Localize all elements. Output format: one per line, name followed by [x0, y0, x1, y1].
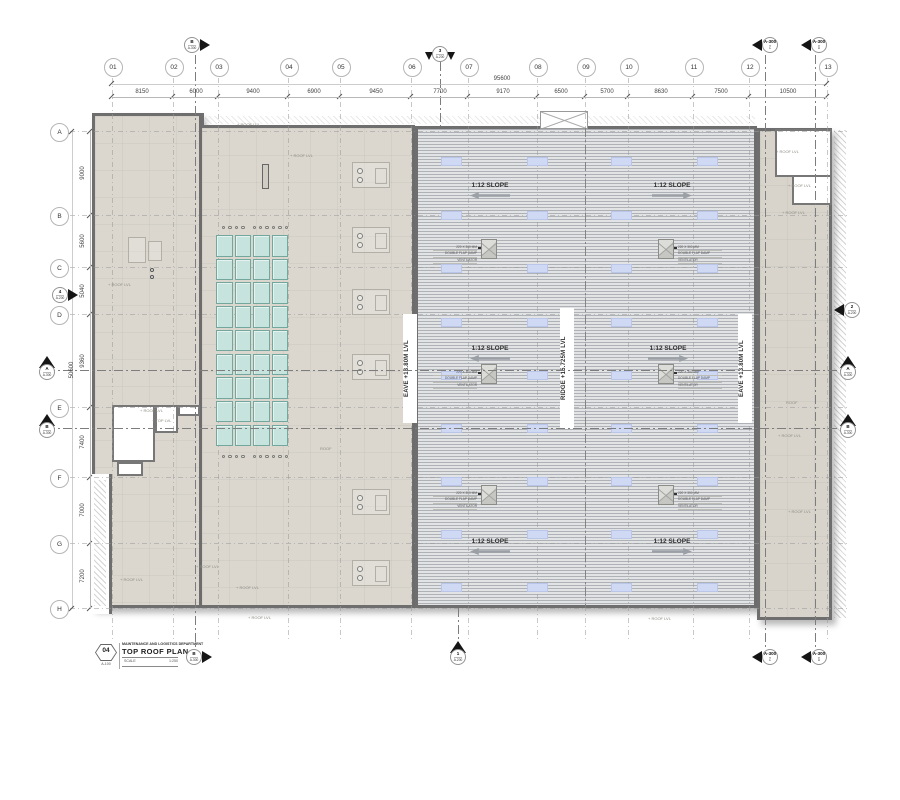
level-note: + ROOF LVL — [236, 586, 259, 590]
grid-line-row — [70, 131, 848, 132]
level-note: ROOF — [320, 447, 332, 451]
grid-line-column — [173, 78, 174, 640]
skylight-strip — [441, 264, 462, 273]
ventilator-note: 220 X 300 MMDOUBLE FLAP DAMPVENTILATOR — [678, 491, 722, 510]
section-marker-circle: A-300C — [762, 649, 778, 665]
scale-value: 1:250 — [158, 660, 178, 664]
section-cut-line — [46, 370, 852, 371]
equipment-fan-circle — [357, 575, 363, 581]
skylight-strip — [697, 157, 718, 166]
grid-bubble-row: B — [50, 207, 69, 226]
section-marker-label: 1 — [457, 652, 460, 657]
grid-bubble-column: 02 — [165, 58, 184, 77]
rooftop-equipment — [352, 560, 390, 586]
section-marker-label: B — [192, 652, 195, 657]
dimension-label: 5600 — [80, 221, 86, 261]
grid-bubble-row: F — [50, 469, 69, 488]
rooftop-equipment — [352, 489, 390, 515]
skylight-strip — [697, 318, 718, 327]
section-marker-label: B — [846, 425, 849, 430]
section-marker-circle: 1A-200 — [450, 649, 466, 665]
ventilator-note-line: VENTILATOR — [433, 383, 477, 389]
skylight-strip — [697, 530, 718, 539]
skylight-panel — [253, 401, 270, 423]
skylight-panel — [216, 354, 233, 376]
grid-bubble-row: G — [50, 535, 69, 554]
skylight-strip — [441, 157, 462, 166]
ventilator-leader — [478, 493, 481, 495]
section-marker-circle: AA-300 — [39, 364, 55, 380]
section-marker-B: BA-300 — [180, 30, 210, 60]
skylight-panel — [272, 330, 289, 352]
section-marker-circle: A-300D — [811, 37, 827, 53]
skylight-panel — [253, 259, 270, 281]
equipment-fan-circle — [357, 504, 363, 510]
section-cut-line — [46, 428, 852, 429]
grid-line-row — [70, 407, 848, 408]
skylight-panel — [253, 282, 270, 304]
level-note: + ROOF LVL — [782, 211, 805, 215]
skylight-panel — [272, 377, 289, 399]
equipment-housing — [375, 495, 387, 511]
skylight-panel — [216, 401, 233, 423]
sheet-number: 04 — [95, 648, 117, 655]
dimension-label: 9360 — [80, 341, 86, 381]
roof-structure — [128, 237, 146, 263]
section-marker-ref: C — [769, 45, 771, 50]
level-note: + ROOF LVL — [196, 565, 219, 569]
section-marker-A: AA-300 — [32, 355, 62, 385]
skylight-strip — [611, 157, 632, 166]
slope-label: 1:12 SLOPE — [458, 539, 522, 546]
skylight-panel — [272, 401, 289, 423]
grid-bubble-column: 12 — [741, 58, 760, 77]
ventilator-leader — [674, 493, 677, 495]
notch-left-4 — [117, 462, 143, 476]
ventilator-leader — [478, 372, 481, 374]
grid-bubble-column: 01 — [104, 58, 123, 77]
skylight-strip — [611, 530, 632, 539]
section-marker-ref: D — [818, 657, 820, 662]
section-marker-ref: A-300 — [43, 430, 52, 435]
equipment-fan-circle — [357, 168, 363, 174]
scale-label: SCALE — [124, 660, 136, 664]
section-marker-circle: BA-300 — [186, 649, 202, 665]
skylight-panel — [235, 401, 252, 423]
level-label: RIDGE +15.725M LVL — [560, 308, 574, 429]
dim-line-top — [112, 97, 827, 98]
drawing-title: TOP ROOF PLAN — [122, 648, 189, 656]
equipment-fan-circle — [357, 304, 363, 310]
title-rule — [122, 657, 178, 658]
skylight-panel — [272, 259, 289, 281]
section-marker-1: 1A-200 — [443, 640, 473, 670]
ventilator-note: 220 X 300 MMDOUBLE FLAP DAMPVENTILATOR — [433, 370, 477, 389]
level-note: + ROOF LVL — [140, 409, 163, 413]
skylight-strip — [527, 264, 548, 273]
section-marker-circle: A-300C — [762, 37, 778, 53]
skylight-panel — [216, 282, 233, 304]
rooftop-equipment — [352, 162, 390, 188]
dimension-label: 7400 — [80, 422, 86, 462]
section-marker-circle: BA-300 — [840, 422, 856, 438]
section-marker-circle: BA-300 — [39, 422, 55, 438]
skylight-panel — [216, 330, 233, 352]
skylight-strip — [697, 583, 718, 592]
title-divider — [119, 643, 120, 669]
section-marker-ref: A-200 — [436, 54, 445, 59]
skylight-panel — [235, 235, 252, 257]
section-marker-label: A — [45, 367, 48, 372]
overall-dimension-top: 95600 — [482, 76, 522, 82]
section-marker-label: A-300 — [813, 652, 825, 657]
grid-bubble-column: 09 — [577, 58, 596, 77]
ventilator-leader — [674, 372, 677, 374]
rooftop-equipment — [352, 289, 390, 315]
slope-label: 1:12 SLOPE — [636, 346, 700, 353]
section-marker-arrow — [68, 289, 78, 301]
dimension-label: 9450 — [356, 89, 396, 95]
skylight-panel — [272, 354, 289, 376]
skylight-strip — [441, 211, 462, 220]
notch-top-right-2 — [792, 175, 832, 205]
ventilator-note-line: VENTILATOR — [433, 504, 477, 510]
grid-line-row — [70, 608, 848, 609]
skylight-panel — [235, 282, 252, 304]
skylight-strip — [697, 211, 718, 220]
skylight-panel — [235, 354, 252, 376]
skylight-strip — [611, 477, 632, 486]
level-note: + ROOF LVL — [248, 616, 271, 620]
dimension-label: 5700 — [587, 89, 627, 95]
grid-line-column — [112, 78, 113, 640]
section-marker-label: A — [846, 367, 849, 372]
section-marker-ref: A-200 — [454, 657, 463, 662]
section-marker-arrow — [752, 39, 762, 51]
dimension-label: 6000 — [176, 89, 216, 95]
ventilator-detail — [481, 364, 497, 384]
level-note: + ROOF LVL — [290, 154, 313, 158]
dimension-label: 7000 — [80, 490, 86, 530]
slope-label: 1:12 SLOPE — [640, 183, 704, 190]
grid-line-row — [70, 314, 848, 315]
grid-bubble-column: 06 — [403, 58, 422, 77]
roof-vent-circle — [278, 226, 281, 229]
section-cut-line — [195, 55, 196, 650]
slope-label: 1:12 SLOPE — [458, 346, 522, 353]
level-note: + TOP LVL — [152, 419, 171, 423]
ventilator-detail — [658, 364, 674, 384]
section-marker-circle: 4A-200 — [52, 287, 68, 303]
section-marker-circle: 2A-200 — [844, 302, 860, 318]
section-marker-ref: D — [818, 45, 820, 50]
skylight-panel — [253, 306, 270, 328]
section-marker-label: B — [45, 425, 48, 430]
roof-step-wall — [199, 113, 204, 128]
section-marker-arrow — [752, 651, 762, 663]
skylight-panel — [235, 330, 252, 352]
grid-bubble-row: A — [50, 123, 69, 142]
dimension-label: 6500 — [541, 89, 581, 95]
section-marker-ref: A-300 — [190, 657, 199, 662]
skylight-strip — [611, 318, 632, 327]
section-marker-A-300: A-300D — [801, 642, 831, 672]
grid-bubble-row: H — [50, 600, 69, 619]
skylight-strip — [611, 583, 632, 592]
skylight-panel — [235, 306, 252, 328]
ventilator-detail — [658, 485, 674, 505]
overall-dimension-left: 50600 — [69, 350, 75, 390]
skylight-strip — [441, 477, 462, 486]
level-note: + ROOF LVL — [776, 150, 799, 154]
section-marker-A-300: A-300D — [801, 30, 831, 60]
ventilator-detail — [481, 239, 497, 259]
section-marker-A-300: A-300C — [752, 642, 782, 672]
skylight-strip — [441, 583, 462, 592]
slope-label: 1:12 SLOPE — [458, 183, 522, 190]
level-note: + ROOF LVL — [788, 510, 811, 514]
section-marker-A-300: A-300C — [752, 30, 782, 60]
grid-line-column — [693, 78, 694, 640]
skylight-panel — [253, 235, 270, 257]
ridge-line — [585, 128, 586, 608]
section-marker-arrow — [801, 39, 811, 51]
equipment-fan-circle — [357, 566, 363, 572]
section-marker-B: BA-300 — [32, 413, 62, 443]
level-note: + ROOF LVL — [788, 184, 811, 188]
ventilator-note: 220 X 300 MMDOUBLE FLAP DAMPVENTILATOR — [433, 491, 477, 510]
level-note: ROOF — [786, 401, 798, 405]
ventilator-detail — [481, 485, 497, 505]
skylight-panel — [253, 377, 270, 399]
section-marker-ref: A-300 — [43, 372, 52, 377]
dimension-label: 7500 — [701, 89, 741, 95]
skylight-panel — [272, 306, 289, 328]
section-marker-circle: BA-300 — [184, 37, 200, 53]
section-marker-label: A-300 — [813, 40, 825, 45]
equipment-fan-circle — [357, 495, 363, 501]
equipment-housing — [375, 566, 387, 582]
dimension-label: 10500 — [768, 89, 808, 95]
grid-bubble-column: 08 — [529, 58, 548, 77]
rooftop-equipment — [352, 354, 390, 380]
dimension-label: 5040 — [80, 271, 86, 311]
grid-bubble-column: 10 — [620, 58, 639, 77]
equipment-housing — [375, 295, 387, 311]
dimension-label: 9000 — [80, 153, 86, 193]
section-marker-ref: A-300 — [844, 372, 853, 377]
section-marker-label: 4 — [59, 290, 62, 295]
ventilator-leader — [674, 247, 677, 249]
equipment-housing — [375, 360, 387, 376]
section-marker-ref: A-300 — [844, 430, 853, 435]
grid-bubble-column: 03 — [210, 58, 229, 77]
skylight-panel — [216, 235, 233, 257]
skylight-panel — [272, 235, 289, 257]
section-marker-circle: A-300D — [811, 649, 827, 665]
skylight-panel — [253, 354, 270, 376]
section-marker-arrow — [200, 39, 210, 51]
dim-line-top-overall — [112, 84, 827, 85]
section-marker-label: 3 — [439, 49, 442, 54]
rooftop-equipment — [352, 227, 390, 253]
roof-plan-canvas: 04 A-100 MAINTENANCE AND LOGISTICS DEPAR… — [0, 0, 900, 800]
level-note: + ROOF LVL — [778, 434, 801, 438]
skylight-strip — [611, 371, 632, 380]
section-marker-A: AA-300 — [833, 355, 863, 385]
skylight-panel — [216, 377, 233, 399]
section-marker-B: BA-300 — [182, 642, 212, 672]
section-marker-label: A-300 — [764, 40, 776, 45]
ventilator-note-line: VENTILATOR — [678, 383, 722, 389]
section-marker-ref: A-200 — [56, 295, 65, 300]
section-marker-arrow — [834, 304, 844, 316]
slope-label: 1:12 SLOPE — [640, 539, 704, 546]
section-marker-4: 4A-200 — [48, 280, 78, 310]
skylight-strip — [527, 211, 548, 220]
skylight-strip — [527, 530, 548, 539]
section-marker-ref: A-300 — [188, 45, 197, 50]
section-marker-B: BA-300 — [833, 413, 863, 443]
dimension-label: 8630 — [641, 89, 681, 95]
section-cut-line — [765, 55, 766, 650]
grid-line-column — [340, 78, 341, 640]
skylight-strip — [527, 371, 548, 380]
roof-vent-circle — [278, 455, 281, 458]
section-marker-circle: 3A-200 — [432, 46, 448, 62]
grid-bubble-column: 05 — [332, 58, 351, 77]
sheet-ref: A-100 — [95, 663, 117, 667]
skylight-strip — [611, 211, 632, 220]
skylight-strip — [697, 264, 718, 273]
level-label: EAVE +13.80M LVL — [403, 314, 417, 423]
skylight-panel — [235, 259, 252, 281]
level-note: + ROOF LVL — [108, 283, 131, 287]
ventilator-note-line: VENTILATOR — [678, 258, 722, 264]
dimension-label: 7200 — [80, 556, 86, 596]
grid-line-column — [827, 78, 828, 640]
grid-bubble-column: 13 — [819, 58, 838, 77]
ventilator-note: 220 X 300 MMDOUBLE FLAP DAMPVENTILATOR — [433, 245, 477, 264]
section-marker-2: 2A-200 — [834, 295, 864, 325]
grid-bubble-column: 07 — [460, 58, 479, 77]
dimension-label: 8150 — [122, 89, 162, 95]
skylight-strip — [527, 318, 548, 327]
section-marker-circle: AA-300 — [840, 364, 856, 380]
roof-structure — [148, 241, 162, 261]
equipment-fan-circle — [357, 360, 363, 366]
roof-vent-circle — [150, 275, 154, 279]
ventilator-detail — [658, 239, 674, 259]
skylight-strip — [527, 477, 548, 486]
skylight-panel — [216, 306, 233, 328]
skylight-strip — [611, 264, 632, 273]
dimension-label: 6900 — [294, 89, 334, 95]
section-marker-label: A-300 — [764, 652, 776, 657]
equipment-fan-circle — [357, 233, 363, 239]
ventilator-note: 220 X 300 MMDOUBLE FLAP DAMPVENTILATOR — [678, 245, 722, 264]
grid-line-column — [288, 78, 289, 640]
roof-access-hatch — [262, 164, 269, 189]
section-marker-arrow — [801, 651, 811, 663]
skylight-strip — [527, 583, 548, 592]
skylight-panel — [253, 330, 270, 352]
ventilator-leader — [478, 247, 481, 249]
equipment-fan-circle — [357, 177, 363, 183]
equipment-housing — [375, 233, 387, 249]
ventilator-note-line: VENTILATOR — [433, 258, 477, 264]
skylight-strip — [441, 530, 462, 539]
dim-line-left — [90, 131, 91, 608]
section-marker-ref: A-200 — [848, 310, 857, 315]
skylight-strip — [527, 157, 548, 166]
section-marker-arrow — [202, 651, 212, 663]
section-marker-label: 2 — [851, 305, 854, 310]
level-note: + ROOF LVL — [120, 578, 143, 582]
section-marker-ref: C — [769, 657, 771, 662]
skylight-strip — [697, 477, 718, 486]
roof-vent-circle — [241, 226, 244, 229]
equipment-fan-circle — [357, 295, 363, 301]
title-rule-bottom — [122, 666, 178, 667]
skylight-panel — [272, 282, 289, 304]
equipment-fan-circle — [357, 242, 363, 248]
ventilator-note: 220 X 300 MMDOUBLE FLAP DAMPVENTILATOR — [678, 370, 722, 389]
skylight-panel — [216, 259, 233, 281]
grid-line-column — [468, 78, 469, 640]
skylight-panel — [235, 377, 252, 399]
notch-left-1 — [112, 405, 155, 462]
roof-hatch-detail — [540, 111, 588, 129]
equipment-housing — [375, 168, 387, 184]
ventilator-note-line: VENTILATOR — [678, 504, 722, 510]
section-cut-line — [815, 55, 816, 650]
dimension-label: 7700 — [420, 89, 460, 95]
section-marker-label: B — [190, 40, 193, 45]
roof-vent-circle — [150, 268, 154, 272]
section-marker-arrow — [447, 52, 455, 60]
dimension-label: 9170 — [483, 89, 523, 95]
level-note: + ROOF LVL — [648, 617, 671, 621]
dimension-label: 9400 — [233, 89, 273, 95]
grid-bubble-column: 04 — [280, 58, 299, 77]
level-note: + ROOF LVL — [237, 123, 260, 127]
section-marker-3: 3A-200 — [425, 40, 455, 70]
level-label: EAVE +13.80M LVL — [738, 314, 752, 423]
grid-bubble-row: C — [50, 259, 69, 278]
grid-bubble-column: 11 — [685, 58, 704, 77]
roof-vent-circle — [241, 455, 244, 458]
skylight-strip — [441, 318, 462, 327]
